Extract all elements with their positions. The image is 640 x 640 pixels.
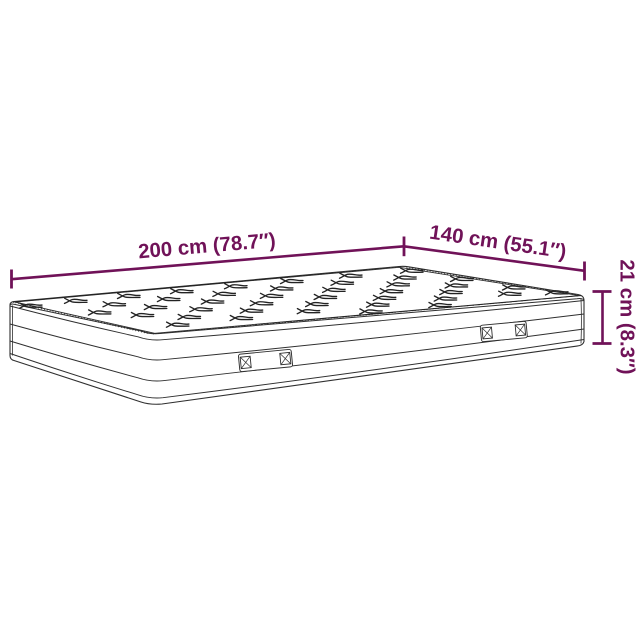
svg-text:21 cm (8.3″): 21 cm (8.3″) [616,259,638,374]
